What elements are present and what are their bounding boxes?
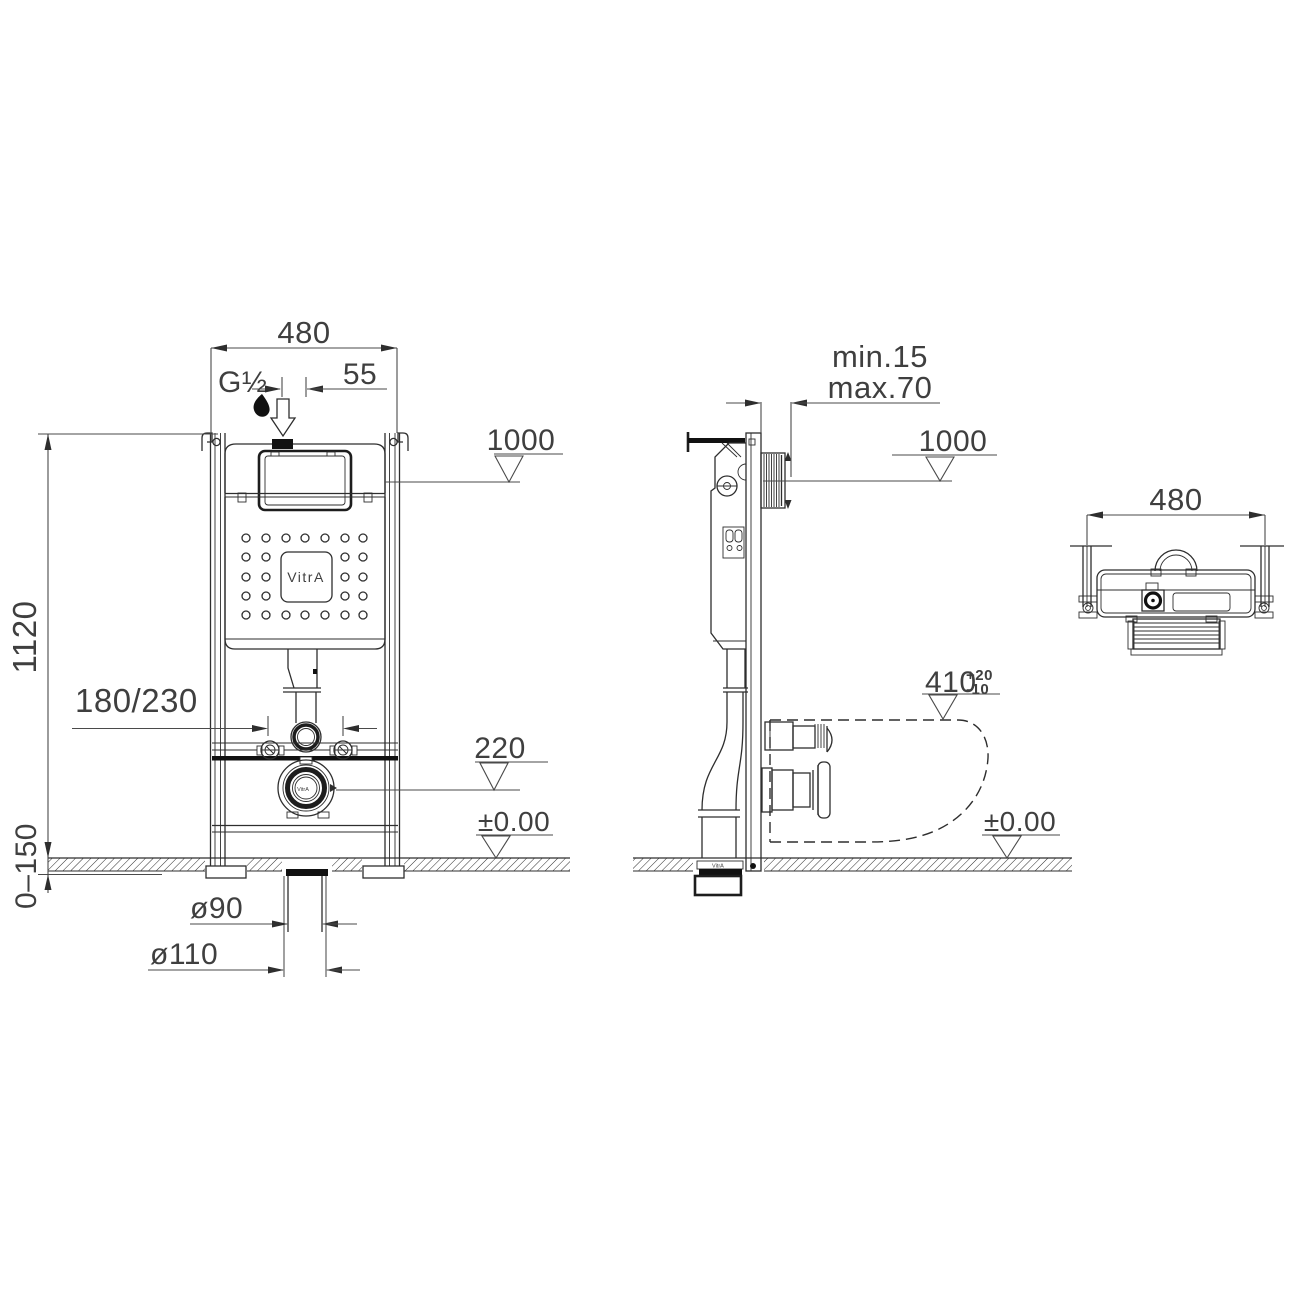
level-marker [993,836,1021,858]
flange-brand-text: VitrA [297,787,309,793]
toilet-bowl-outline [770,720,988,842]
dim-frame-height: 1120 [6,601,43,674]
pipe-brand-text: VitrA [712,864,724,870]
dim-front-level-1000: 1000 [487,424,556,457]
lid-clip [364,493,372,502]
front-view: VitrA [6,315,570,977]
dim-waste-d90: ø90 [190,892,243,925]
outlet-connection [762,762,830,818]
dim-outlet-height: 220 [474,732,526,765]
lid-clip [238,493,246,502]
wall-hanger-brackets [202,433,408,451]
dim-front-width: 480 [277,315,330,350]
side-wall-bracket [688,432,745,457]
brand-logo: VitrA [287,569,325,585]
inlet-fitting [272,439,293,449]
top-access-window [1173,593,1230,611]
dim-waste-d110: ø110 [150,938,218,971]
level-marker [926,457,954,481]
side-floor [633,857,1072,872]
right-foot [363,866,404,878]
technical-drawing-page: VitrA [0,0,1300,1300]
side-view: VitrA [633,339,1072,895]
top-ribbed-box [1126,616,1225,655]
access-window [259,451,351,510]
dim-front-floor-level: ±0.00 [478,806,550,837]
dim-side-floor-level: ±0.00 [984,806,1056,837]
installation-drawing: VitrA [0,0,1300,1300]
dim-finish-max: max.70 [828,370,933,405]
waste-pipe [284,869,328,977]
dim-fixing-width: 180/230 [75,682,198,719]
side-cistern [711,443,746,649]
dim-inlet-offset: 55 [343,358,377,391]
level-marker [495,456,523,482]
top-view: 480 [1070,482,1284,655]
left-foot [206,866,246,878]
dim-foot-adjust: 0–150 [10,823,43,909]
side-dimensions: min.15 max.70 1000 410 +20 -10 ±0.00 [726,339,1060,858]
dim-bowl-tol-minus: -10 [966,681,989,698]
top-flush-bend [1155,550,1197,571]
flow-arrow-icon [271,399,295,436]
dim-finish-min: min.15 [832,339,928,374]
top-cistern-body [1097,569,1255,617]
level-marker [482,836,510,858]
dim-side-level-1000: 1000 [919,425,988,458]
flush-valve [723,527,744,558]
outlet-flange: VitrA [278,757,337,818]
top-dimensions: 480 [1087,482,1265,545]
top-rail-right [1255,546,1273,618]
top-inlet-connection [1142,590,1164,611]
dim-top-width: 480 [1149,482,1202,517]
flush-connection [765,722,832,752]
level-marker [480,763,508,790]
flush-pipe [283,649,321,752]
dim-inlet-thread: G½ [218,366,267,399]
side-rail [746,433,761,871]
top-rail-left [1079,546,1097,618]
